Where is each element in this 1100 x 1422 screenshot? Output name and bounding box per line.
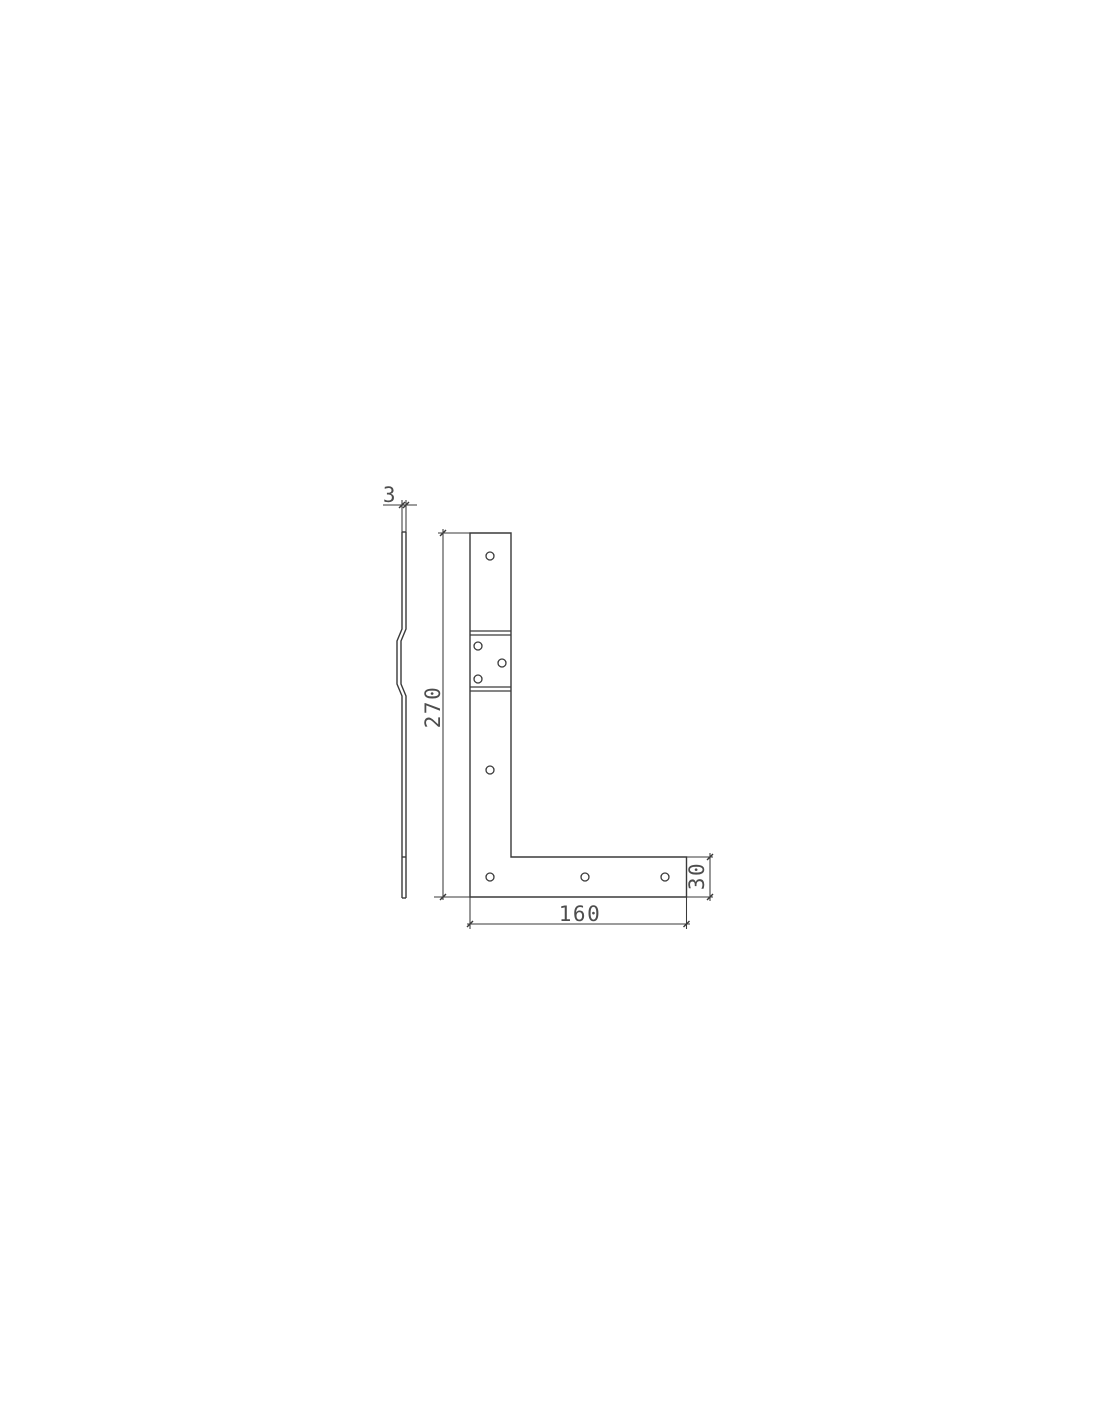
drawing-canvas: 3	[0, 0, 1100, 1422]
screw-hole	[661, 873, 669, 881]
screw-hole	[474, 642, 482, 650]
l-bracket-drawing: 3	[0, 0, 1100, 1422]
dimension-height: 270	[421, 529, 470, 900]
width-dimension-label: 160	[559, 902, 601, 926]
bracket-outline	[470, 533, 687, 897]
thickness-dimension-label: 3	[383, 483, 397, 507]
height-dimension-label: 270	[421, 686, 445, 728]
screw-hole	[486, 766, 494, 774]
dimension-flange-height: 30	[685, 853, 713, 901]
screw-hole	[474, 675, 482, 683]
flange-dimension-label: 30	[685, 862, 709, 890]
screw-hole	[486, 873, 494, 881]
screw-hole	[581, 873, 589, 881]
screw-hole	[498, 659, 506, 667]
front-view	[470, 533, 687, 897]
side-profile-left-edge	[397, 532, 402, 898]
dimension-bottom-width: 160	[467, 897, 690, 929]
screw-hole	[486, 552, 494, 560]
side-profile-view: 3	[383, 483, 417, 898]
